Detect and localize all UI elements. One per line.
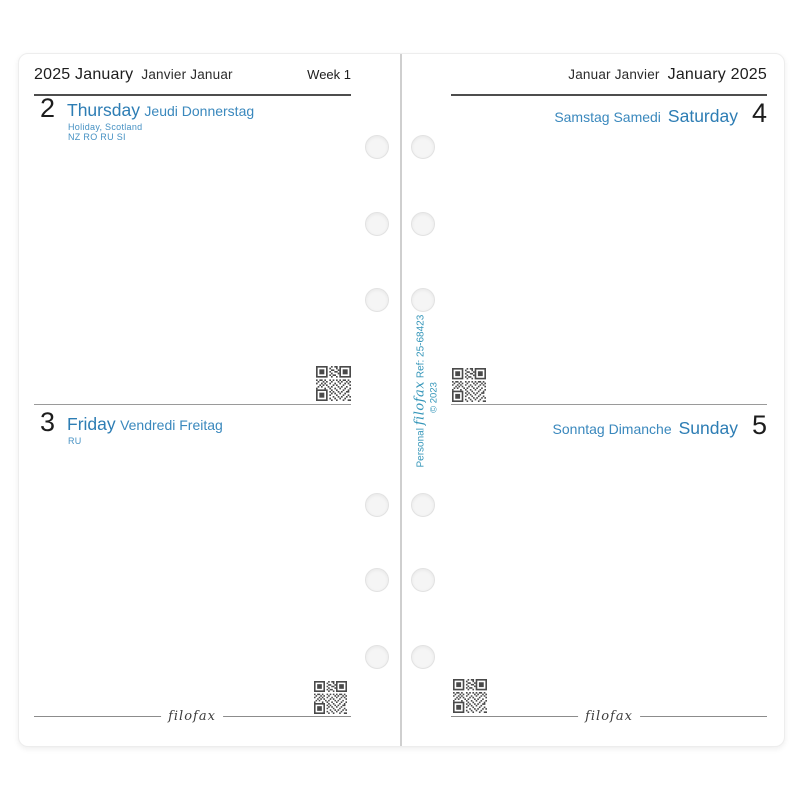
qr-code bbox=[316, 366, 351, 401]
size-label: Personal bbox=[416, 428, 427, 467]
day-name-row: Samstag Samedi Saturday 4 bbox=[554, 98, 767, 129]
day-name-primary: Thursday bbox=[67, 100, 140, 120]
page-gutter-line bbox=[400, 54, 402, 746]
day-divider-line bbox=[451, 404, 767, 405]
qr-code bbox=[314, 681, 347, 714]
punch-hole bbox=[365, 493, 389, 517]
day-number: 3 bbox=[40, 409, 55, 436]
punch-hole bbox=[411, 645, 435, 669]
country-codes-note: RU bbox=[68, 436, 82, 446]
punch-hole bbox=[365, 568, 389, 592]
qr-code bbox=[452, 368, 486, 402]
day-name-translations: Samstag Samedi bbox=[554, 109, 661, 125]
month-translations: Janvier Januar bbox=[141, 67, 232, 82]
day-name-row: Friday Vendredi Freitag bbox=[67, 414, 223, 435]
day-name-translations: Vendredi Freitag bbox=[120, 417, 223, 433]
day-name-row: Thursday Jeudi Donnerstag bbox=[67, 100, 254, 121]
day-name-primary: Sunday bbox=[679, 418, 738, 439]
punch-hole bbox=[411, 288, 435, 312]
filofax-logo: filofax bbox=[161, 709, 223, 724]
diary-product-image: 2025 January Janvier Januar Week 1 2 Thu… bbox=[0, 0, 800, 800]
month-year-primary: 2025 January bbox=[34, 66, 133, 84]
month-year-primary: January 2025 bbox=[668, 66, 767, 84]
copyright: © 2023 bbox=[428, 328, 441, 468]
left-month-header: 2025 January Janvier Januar Week 1 bbox=[34, 66, 351, 96]
filofax-logo: filofax bbox=[578, 709, 640, 724]
punch-hole bbox=[411, 568, 435, 592]
day-name-primary: Saturday bbox=[668, 106, 738, 127]
punch-hole bbox=[365, 288, 389, 312]
qr-code bbox=[453, 679, 487, 713]
punch-hole bbox=[365, 212, 389, 236]
day-name-primary: Friday bbox=[67, 414, 116, 434]
week-number-label: Week 1 bbox=[307, 67, 351, 82]
day-number: 4 bbox=[752, 98, 767, 129]
day-name-translations: Jeudi Donnerstag bbox=[144, 103, 254, 119]
diary-two-page-spread: 2025 January Janvier Januar Week 1 2 Thu… bbox=[18, 53, 785, 747]
punch-hole bbox=[411, 212, 435, 236]
right-month-header: Januar Janvier January 2025 bbox=[451, 66, 767, 96]
day-number: 2 bbox=[40, 95, 55, 122]
filofax-logo: filofax bbox=[413, 381, 428, 425]
ref-number: Ref: 25-68423 bbox=[416, 315, 427, 378]
day-name-translations: Sonntag Dimanche bbox=[553, 421, 672, 437]
holiday-note: Holiday, Scotland bbox=[68, 122, 142, 132]
country-codes-note: NZ RO RU SI bbox=[68, 132, 126, 142]
day-name-row: Sonntag Dimanche Sunday 5 bbox=[553, 410, 767, 441]
month-translations: Januar Janvier bbox=[568, 67, 659, 82]
punch-hole bbox=[365, 135, 389, 159]
day-divider-line bbox=[34, 404, 351, 405]
day-number: 5 bbox=[752, 410, 767, 441]
spine-imprint: Personal filofax Ref: 25-68423 © 2023 bbox=[414, 328, 441, 468]
punch-hole bbox=[365, 645, 389, 669]
punch-hole bbox=[411, 493, 435, 517]
punch-hole bbox=[411, 135, 435, 159]
